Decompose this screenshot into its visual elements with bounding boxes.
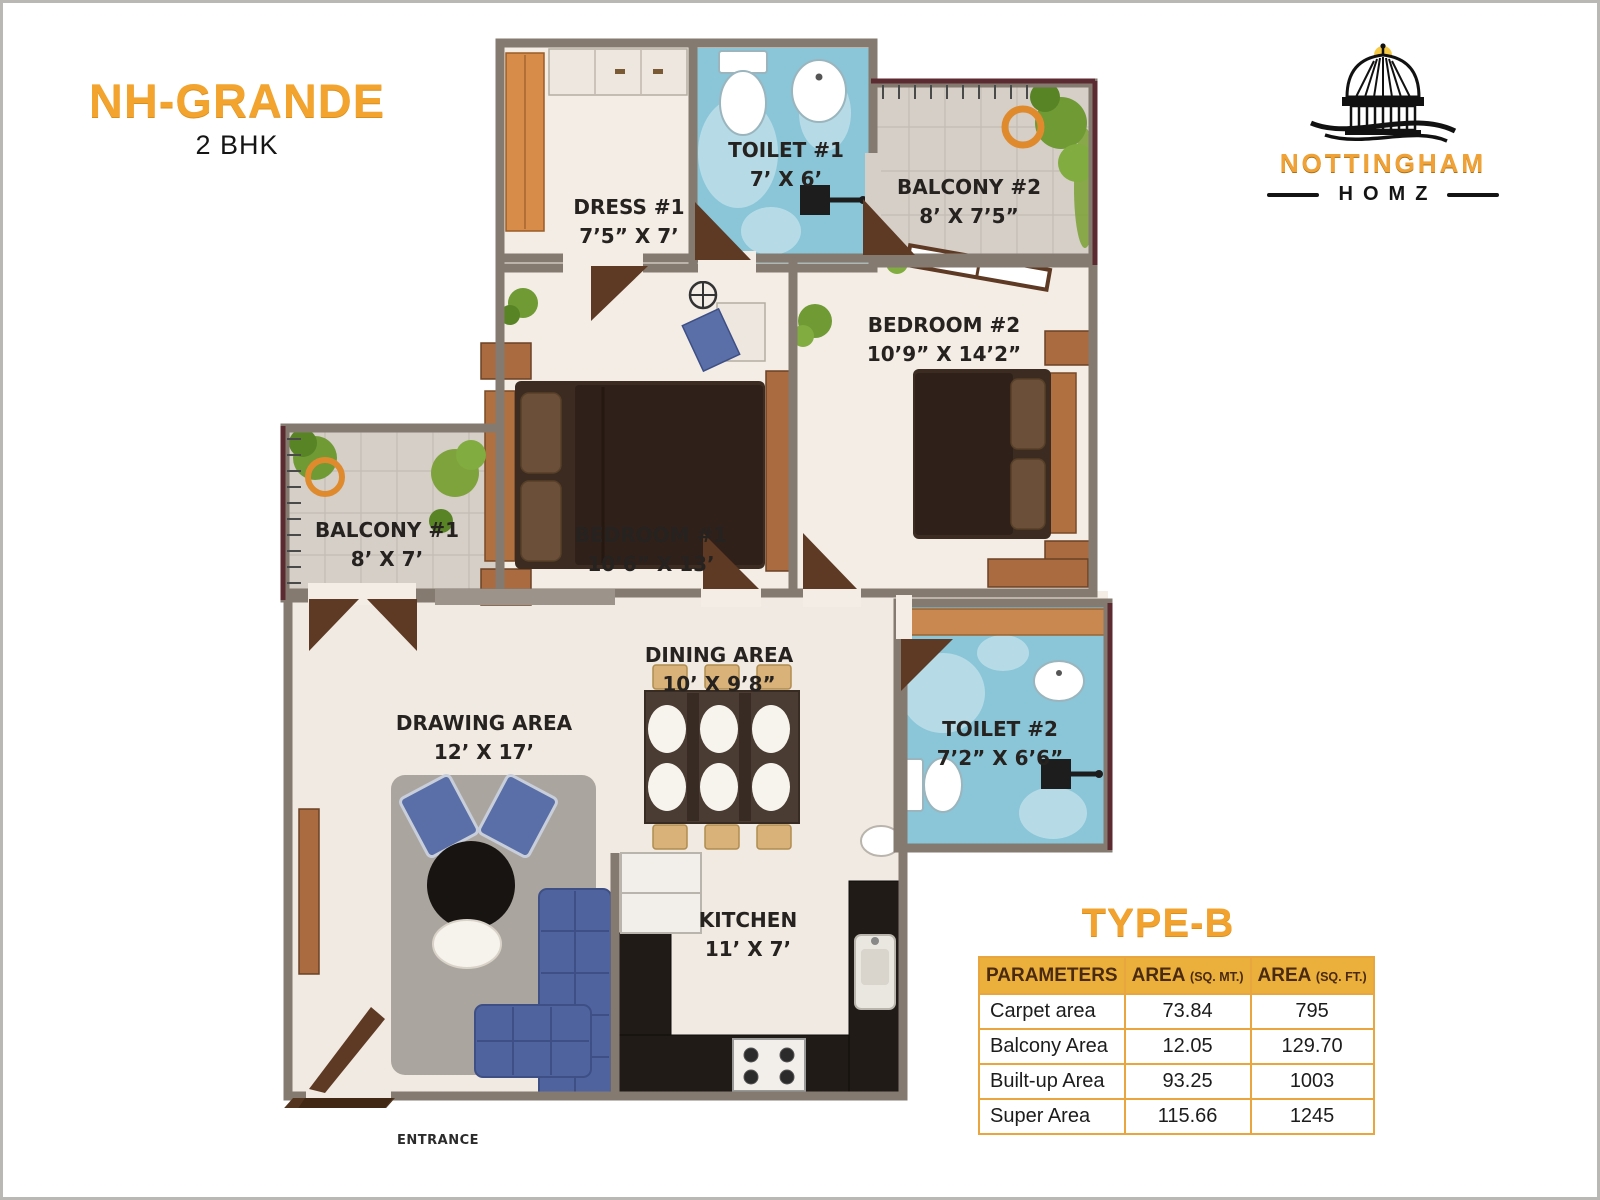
room-dims: 12’ X 17’ <box>396 738 572 767</box>
cell-parameter: Balcony Area <box>979 1029 1125 1064</box>
col-area-sqmt: AREA (SQ. MT.) <box>1125 957 1251 994</box>
room-name: DRESS #1 <box>573 193 684 222</box>
brand-sub: HOMZ <box>1329 183 1438 206</box>
room-dims: 8’ X 7’ <box>315 545 459 574</box>
brand-name: NOTTINGHAM <box>1255 148 1511 179</box>
col-area-sqft: AREA (SQ. FT.) <box>1251 957 1374 994</box>
room-name: TOILET #2 <box>937 715 1064 744</box>
room-name: BEDROOM #1 <box>575 521 727 550</box>
room-label-toilet-1: TOILET #1 7’ X 6’ <box>728 136 844 194</box>
room-label-dining-area: DINING AREA 10’ X 9’8” <box>645 641 793 699</box>
room-name: BALCONY #2 <box>897 173 1041 202</box>
col-parameters: PARAMETERS <box>979 957 1125 994</box>
cell-sqmt: 12.05 <box>1125 1029 1251 1064</box>
col-main: AREA <box>1132 965 1185 986</box>
room-name: DINING AREA <box>645 641 793 670</box>
cell-parameter: Super Area <box>979 1099 1125 1134</box>
room-name: BEDROOM #2 <box>867 311 1021 340</box>
page: NH-GRANDE 2 BHK <box>0 0 1600 1200</box>
room-label-balcony-2: BALCONY #2 8’ X 7’5” <box>897 173 1041 231</box>
room-dims: 10’6” X 13’ <box>575 550 727 579</box>
room-name: KITCHEN <box>699 906 797 935</box>
room-name: DRAWING AREA <box>396 709 572 738</box>
right-rule <box>1447 193 1499 197</box>
col-sub: (SQ. MT.) <box>1190 970 1243 984</box>
room-label-bedroom-1: BEDROOM #1 10’6” X 13’ <box>575 521 727 579</box>
cell-sqft: 795 <box>1251 994 1374 1029</box>
left-rule <box>1267 193 1319 197</box>
cell-sqft: 129.70 <box>1251 1029 1374 1064</box>
room-label-toilet-2: TOILET #2 7’2” X 6’6” <box>937 715 1064 773</box>
room-dims: 10’ X 9’8” <box>645 670 793 699</box>
table-row: Balcony Area 12.05 129.70 <box>979 1029 1374 1064</box>
room-label-bedroom-2: BEDROOM #2 10’9” X 14’2” <box>867 311 1021 369</box>
table-row: Super Area 115.66 1245 <box>979 1099 1374 1134</box>
col-sub: (SQ. FT.) <box>1316 970 1367 984</box>
table-header-row: PARAMETERS AREA (SQ. MT.) AREA (SQ. FT.) <box>979 957 1374 994</box>
room-name: TOILET #1 <box>728 136 844 165</box>
area-table: PARAMETERS AREA (SQ. MT.) AREA (SQ. FT.)… <box>978 956 1375 1135</box>
room-dims: 7’ X 6’ <box>728 165 844 194</box>
room-label-drawing-area: DRAWING AREA 12’ X 17’ <box>396 709 572 767</box>
room-dims: 11’ X 7’ <box>699 935 797 964</box>
room-dims: 8’ X 7’5” <box>897 202 1041 231</box>
capitol-dome-icon <box>1308 43 1458 145</box>
table-row: Built-up Area 93.25 1003 <box>979 1064 1374 1099</box>
cell-sqft: 1003 <box>1251 1064 1374 1099</box>
type-title: TYPE-B <box>978 901 1338 946</box>
cell-sqmt: 115.66 <box>1125 1099 1251 1134</box>
cell-sqft: 1245 <box>1251 1099 1374 1134</box>
room-label-kitchen: KITCHEN 11’ X 7’ <box>699 906 797 964</box>
cell-parameter: Carpet area <box>979 994 1125 1029</box>
room-label-balcony-1: BALCONY #1 8’ X 7’ <box>315 516 459 574</box>
col-main: AREA <box>1258 965 1311 986</box>
table-row: Carpet area 73.84 795 <box>979 994 1374 1029</box>
brand-sub-row: HOMZ <box>1255 183 1511 206</box>
cell-sqmt: 93.25 <box>1125 1064 1251 1099</box>
room-name: BALCONY #1 <box>315 516 459 545</box>
room-dims: 7’2” X 6’6” <box>937 744 1064 773</box>
entrance-label: ENTRANCE <box>397 1133 479 1148</box>
brand-logo: NOTTINGHAM HOMZ <box>1255 43 1511 206</box>
room-dims: 10’9” X 14’2” <box>867 340 1021 369</box>
cell-parameter: Built-up Area <box>979 1064 1125 1099</box>
cell-sqmt: 73.84 <box>1125 994 1251 1029</box>
room-label-dress-1: DRESS #1 7’5” X 7’ <box>573 193 684 251</box>
room-dims: 7’5” X 7’ <box>573 222 684 251</box>
